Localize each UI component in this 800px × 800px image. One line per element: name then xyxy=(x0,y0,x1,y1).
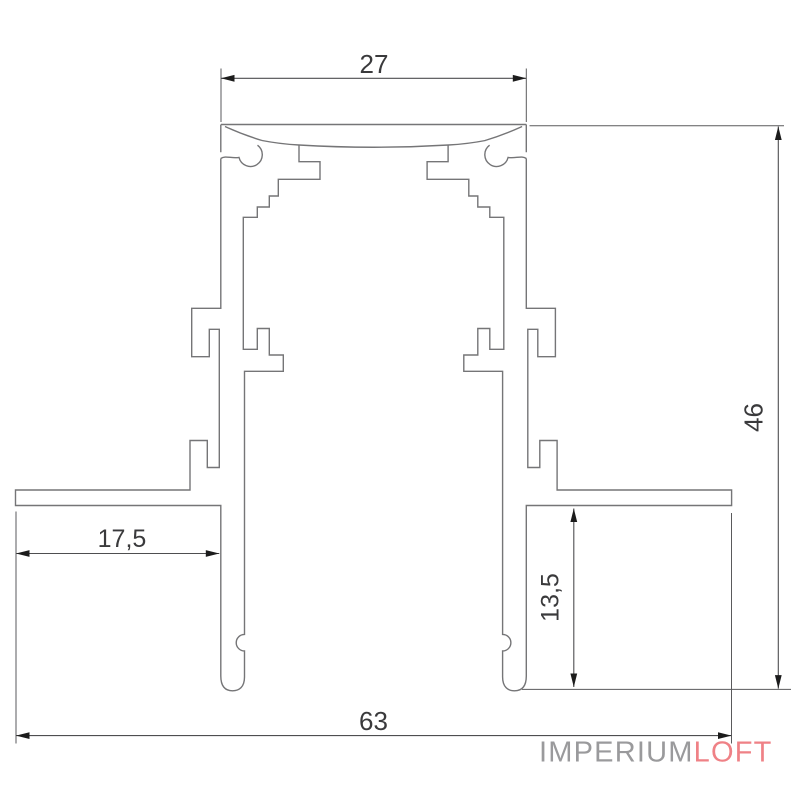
profile-top-plate xyxy=(221,125,526,148)
arrow-right-icon xyxy=(206,550,220,557)
arrow-up-icon xyxy=(775,127,782,141)
arrow-right-icon xyxy=(513,75,527,82)
arrow-down-icon xyxy=(775,675,782,689)
dimension-label-flange-width: 17,5 xyxy=(98,525,147,553)
dimension-flange-width: 17,5 xyxy=(16,525,219,557)
dimension-label-top-width: 27 xyxy=(360,49,389,79)
brand-logo: IMPERIUMLOFT xyxy=(539,737,773,769)
profile-left-half xyxy=(16,125,321,691)
arrow-left-icon xyxy=(221,75,235,82)
arrow-left-icon xyxy=(16,550,30,557)
brand-logo-loft: LOFT xyxy=(694,737,773,769)
dimension-label-overall-width: 63 xyxy=(359,706,388,736)
dimension-label-leg-height: 13,5 xyxy=(537,573,565,622)
arrow-up-icon xyxy=(570,509,577,523)
profile-outline xyxy=(16,125,732,691)
profile-right-half xyxy=(427,125,732,691)
technical-drawing-page: 27 46 17,5 13,5 63 IMPERIUMLOFT xyxy=(0,0,800,800)
profile-cross-section-drawing: 27 46 17,5 13,5 63 IMPERIUMLOFT xyxy=(0,0,800,800)
profile-right-path xyxy=(427,125,732,691)
dimension-leg-height: 13,5 xyxy=(537,509,578,688)
arrow-down-icon xyxy=(570,674,577,688)
arrow-left-icon xyxy=(16,732,30,739)
dimension-top-width: 27 xyxy=(221,49,526,122)
brand-logo-imperium: IMPERIUM xyxy=(539,737,694,769)
dimension-label-overall-height: 46 xyxy=(739,403,769,432)
profile-left-path xyxy=(16,125,321,691)
